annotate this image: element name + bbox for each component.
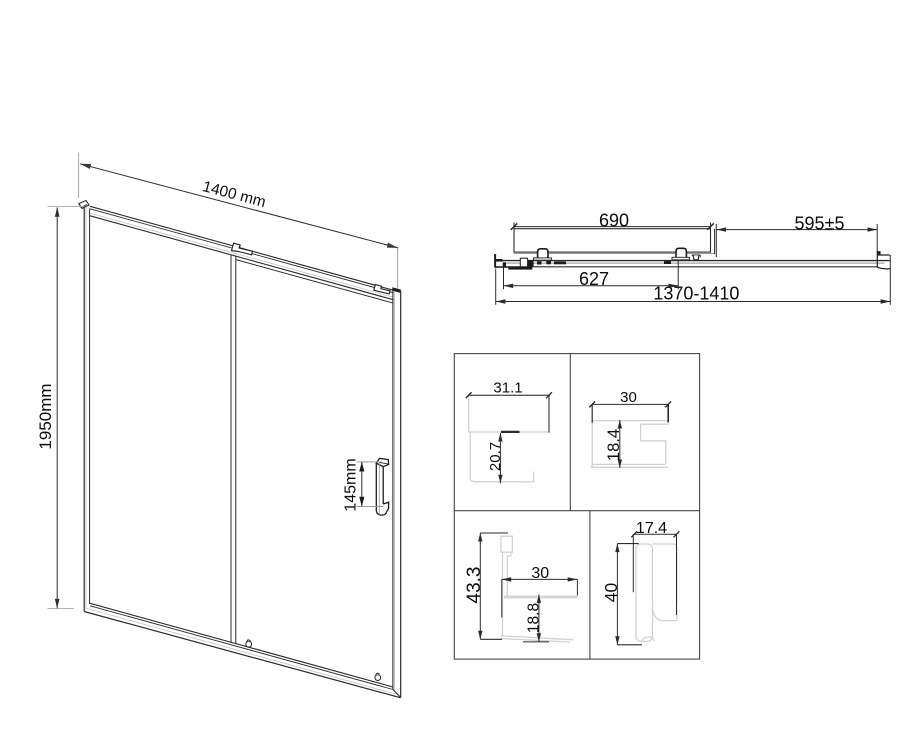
svg-text:40: 40	[601, 583, 621, 603]
svg-text:627: 627	[579, 269, 609, 289]
svg-text:145mm: 145mm	[343, 458, 360, 511]
svg-text:690: 690	[599, 210, 629, 230]
svg-text:20.7: 20.7	[487, 442, 504, 471]
svg-text:43.3: 43.3	[464, 567, 485, 604]
svg-text:18.8: 18.8	[525, 603, 542, 633]
svg-text:1400 mm: 1400 mm	[201, 178, 268, 211]
svg-text:30: 30	[620, 389, 637, 406]
svg-text:30: 30	[531, 565, 549, 582]
svg-text:18.4: 18.4	[605, 429, 623, 461]
svg-text:17.4: 17.4	[636, 520, 667, 537]
svg-text:1370-1410: 1370-1410	[653, 283, 739, 303]
svg-text:1950mm: 1950mm	[36, 383, 55, 449]
svg-text:31.1: 31.1	[493, 380, 522, 397]
svg-text:595±5: 595±5	[795, 213, 845, 233]
